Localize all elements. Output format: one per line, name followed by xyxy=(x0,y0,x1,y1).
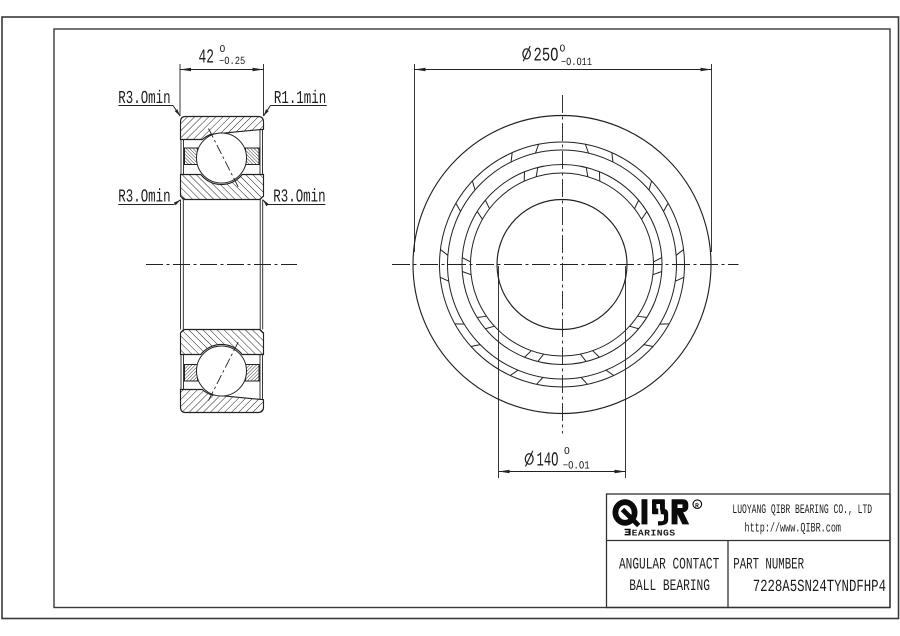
svg-text:BALL BEARING: BALL BEARING xyxy=(629,577,710,595)
svg-text:R: R xyxy=(695,502,699,509)
svg-text:R1.1min: R1.1min xyxy=(274,89,326,109)
svg-text:PART NUMBER: PART NUMBER xyxy=(733,555,804,573)
svg-text:http://www.QIBR.com: http://www.QIBR.com xyxy=(745,520,842,535)
svg-text:R3.Omin: R3.Omin xyxy=(118,89,170,109)
svg-text:25O: 25O xyxy=(534,44,559,66)
svg-text:−O.O1: −O.O1 xyxy=(563,460,590,472)
svg-text:7228A5SN24TYNDFHP4: 7228A5SN24TYNDFHP4 xyxy=(753,578,886,597)
svg-text:LUOYANG QIBR BEARING CO., LTD: LUOYANG QIBR BEARING CO., LTD xyxy=(732,502,872,517)
svg-text:O: O xyxy=(564,446,570,458)
svg-text:−O.25: −O.25 xyxy=(219,56,245,68)
svg-text:ANGULAR CONTACT: ANGULAR CONTACT xyxy=(619,555,719,573)
svg-text:O: O xyxy=(560,43,566,55)
svg-text:14O: 14O xyxy=(537,450,559,473)
svg-text:42: 42 xyxy=(199,47,215,69)
svg-text:−O.O11: −O.O11 xyxy=(561,57,592,69)
svg-text:O: O xyxy=(220,44,226,56)
svg-text:EARINGS: EARINGS xyxy=(632,528,676,538)
